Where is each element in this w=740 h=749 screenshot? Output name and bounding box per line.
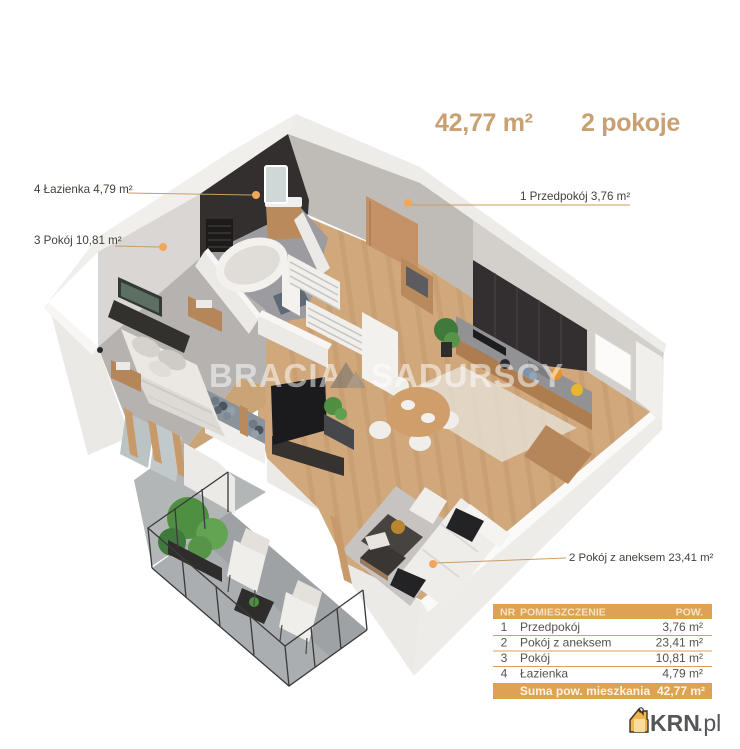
svg-text:BRACIA: BRACIA: [209, 357, 343, 394]
svg-text:NR: NR: [500, 607, 516, 619]
svg-text:Przedpokój: Przedpokój: [520, 620, 580, 634]
svg-text:Łazienka: Łazienka: [520, 667, 568, 681]
svg-text:SADURSCY: SADURSCY: [371, 357, 564, 394]
svg-text:23,41 m²: 23,41 m²: [656, 636, 703, 650]
svg-text:KRN: KRN: [650, 710, 700, 736]
svg-text:1 Przedpokój 3,76 m²: 1 Przedpokój 3,76 m²: [520, 190, 630, 203]
svg-text:2: 2: [501, 636, 508, 650]
svg-text:2 Pokój z aneksem 23,41 m²: 2 Pokój z aneksem 23,41 m²: [569, 552, 714, 564]
svg-text:42,77 m²: 42,77 m²: [657, 684, 705, 698]
svg-text:2 pokoje: 2 pokoje: [581, 109, 680, 137]
svg-text:10,81 m²: 10,81 m²: [656, 651, 703, 665]
svg-text:4,79 m²: 4,79 m²: [662, 667, 703, 681]
svg-text:POMIESZCZENIE: POMIESZCZENIE: [520, 607, 606, 619]
svg-text:3,76 m²: 3,76 m²: [662, 620, 703, 634]
svg-text:Suma pow. mieszkania: Suma pow. mieszkania: [520, 684, 651, 698]
svg-text:3 Pokój 10,81 m²: 3 Pokój 10,81 m²: [34, 234, 122, 247]
svg-text:4 Łazienka 4,79 m²: 4 Łazienka 4,79 m²: [34, 183, 133, 196]
svg-text:Pokój: Pokój: [520, 651, 550, 665]
svg-text:.pl: .pl: [697, 710, 721, 736]
svg-text:1: 1: [501, 620, 508, 634]
svg-text:Pokój z aneksem: Pokój z aneksem: [520, 636, 611, 650]
svg-text:3: 3: [501, 651, 508, 665]
svg-text:4: 4: [501, 667, 508, 681]
svg-text:POW.: POW.: [676, 607, 704, 619]
svg-text:42,77 m²: 42,77 m²: [435, 109, 533, 137]
